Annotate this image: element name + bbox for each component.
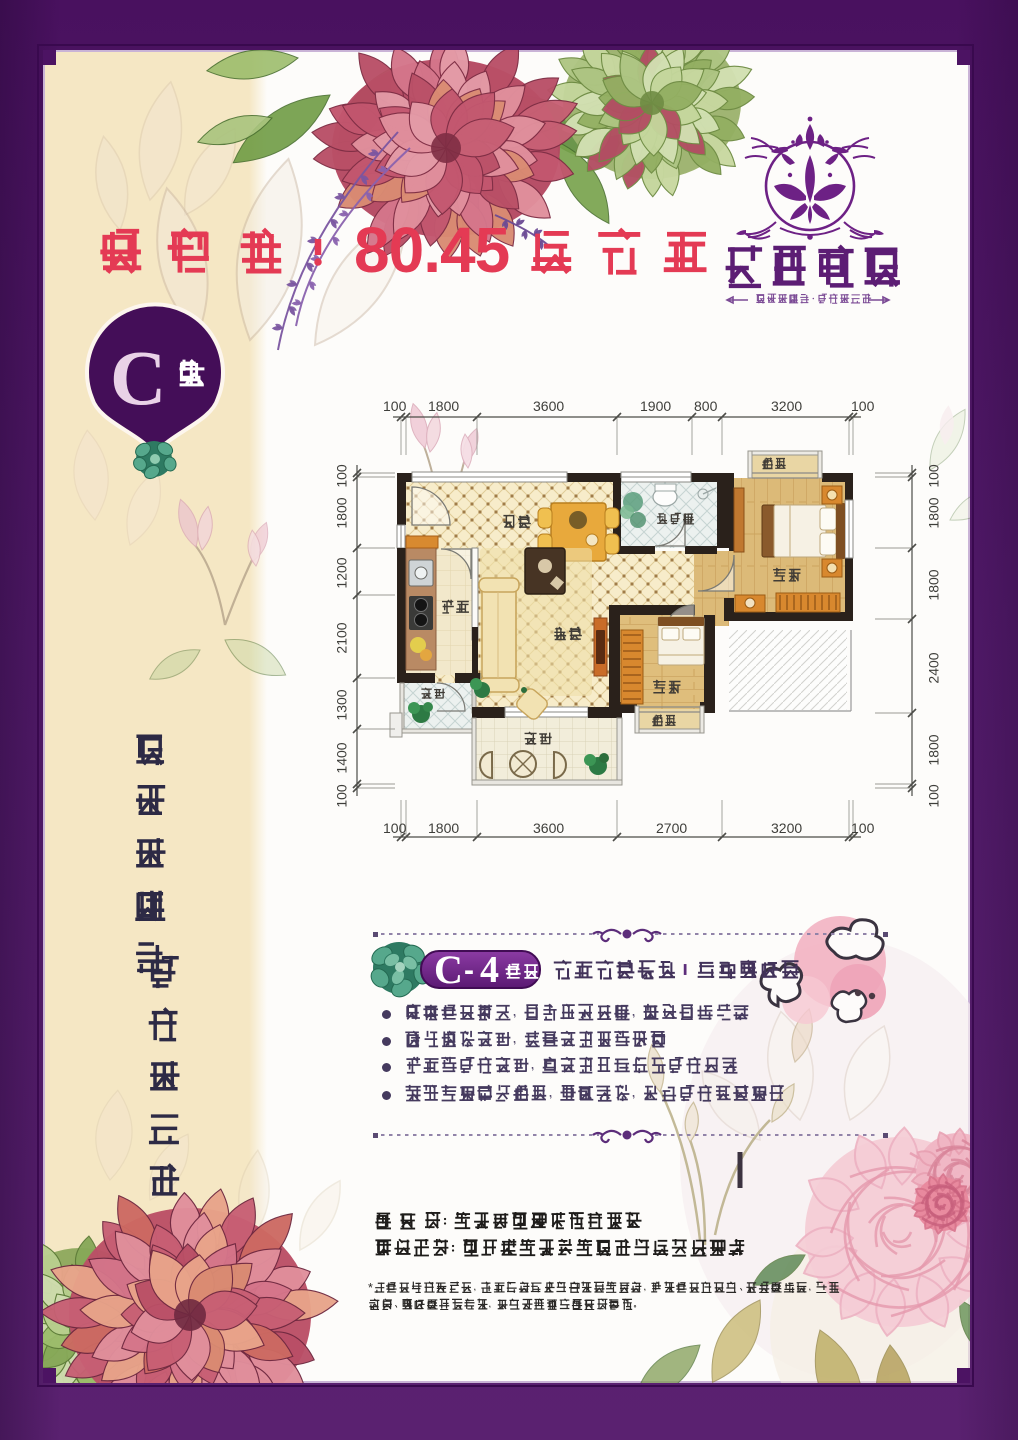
svg-text:C: C — [110, 334, 166, 421]
